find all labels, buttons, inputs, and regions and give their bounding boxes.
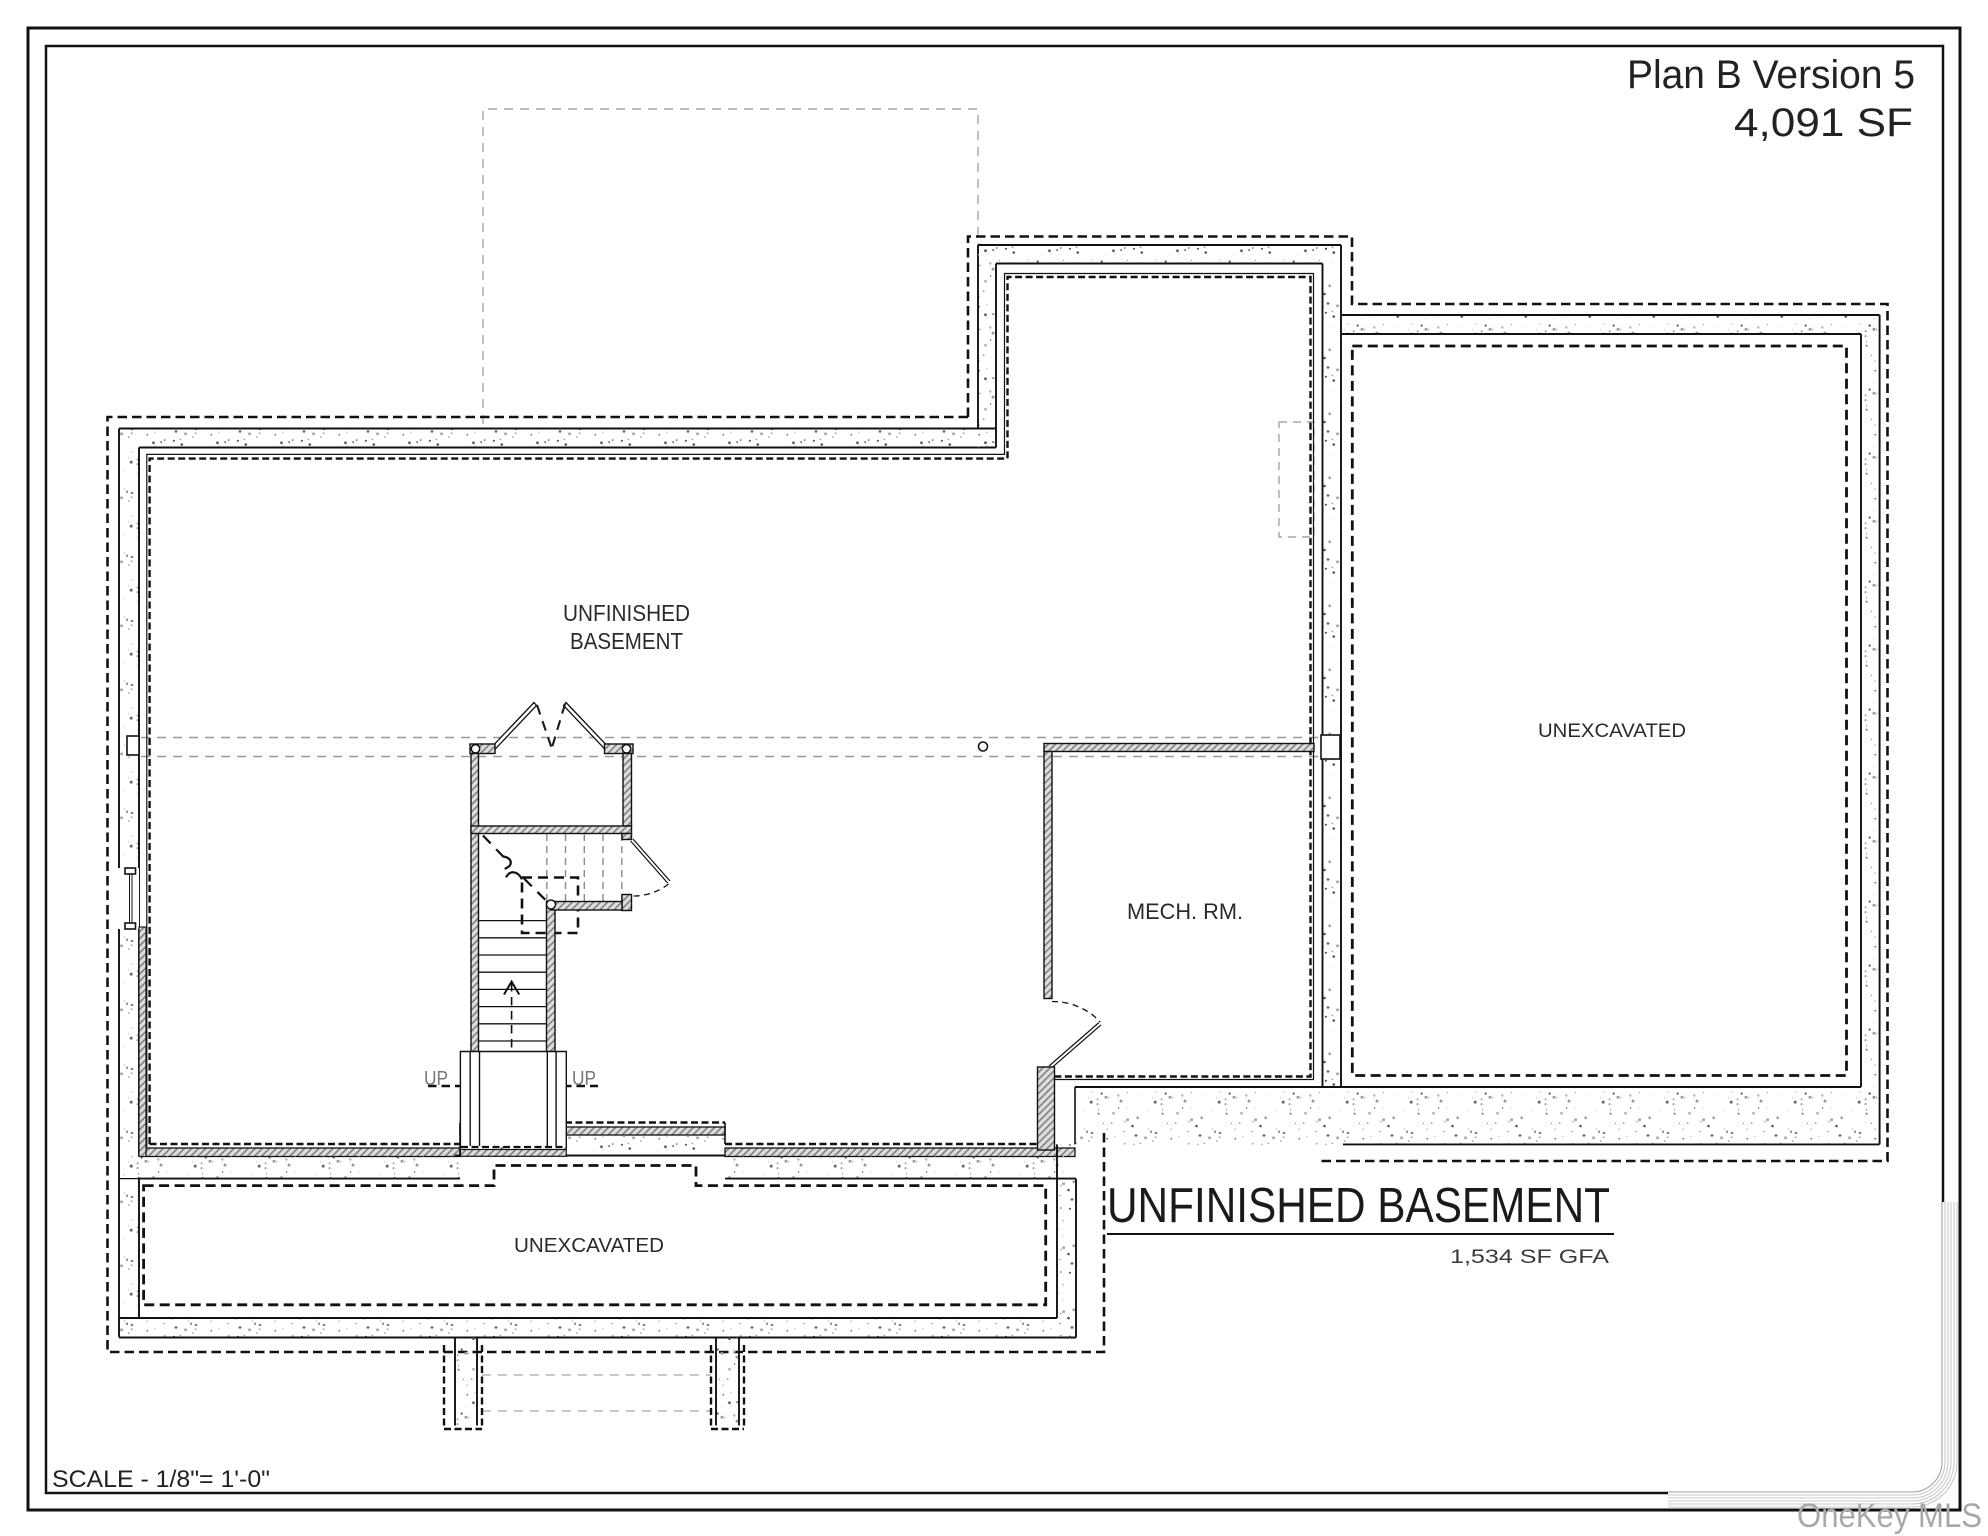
svg-text:UNFINISHED: UNFINISHED (563, 600, 690, 626)
svg-text:UNFINISHED BASEMENT: UNFINISHED BASEMENT (1107, 1179, 1610, 1233)
svg-text:4,091 SF: 4,091 SF (1734, 101, 1913, 145)
svg-text:BASEMENT: BASEMENT (570, 628, 683, 654)
svg-text:SCALE - 1/8"= 1'-0": SCALE - 1/8"= 1'-0" (52, 1466, 270, 1493)
svg-text:1,534 SF GFA: 1,534 SF GFA (1450, 1247, 1609, 1268)
svg-text:Plan B Version 5: Plan B Version 5 (1627, 53, 1915, 97)
svg-text:UP: UP (424, 1067, 448, 1090)
svg-text:UNEXCAVATED: UNEXCAVATED (1538, 720, 1686, 742)
svg-text:OneKey MLS: OneKey MLS (1797, 1497, 1982, 1535)
svg-text:UNEXCAVATED: UNEXCAVATED (514, 1234, 664, 1257)
svg-text:MECH. RM.: MECH. RM. (1127, 899, 1243, 924)
svg-text:UP: UP (572, 1067, 596, 1090)
